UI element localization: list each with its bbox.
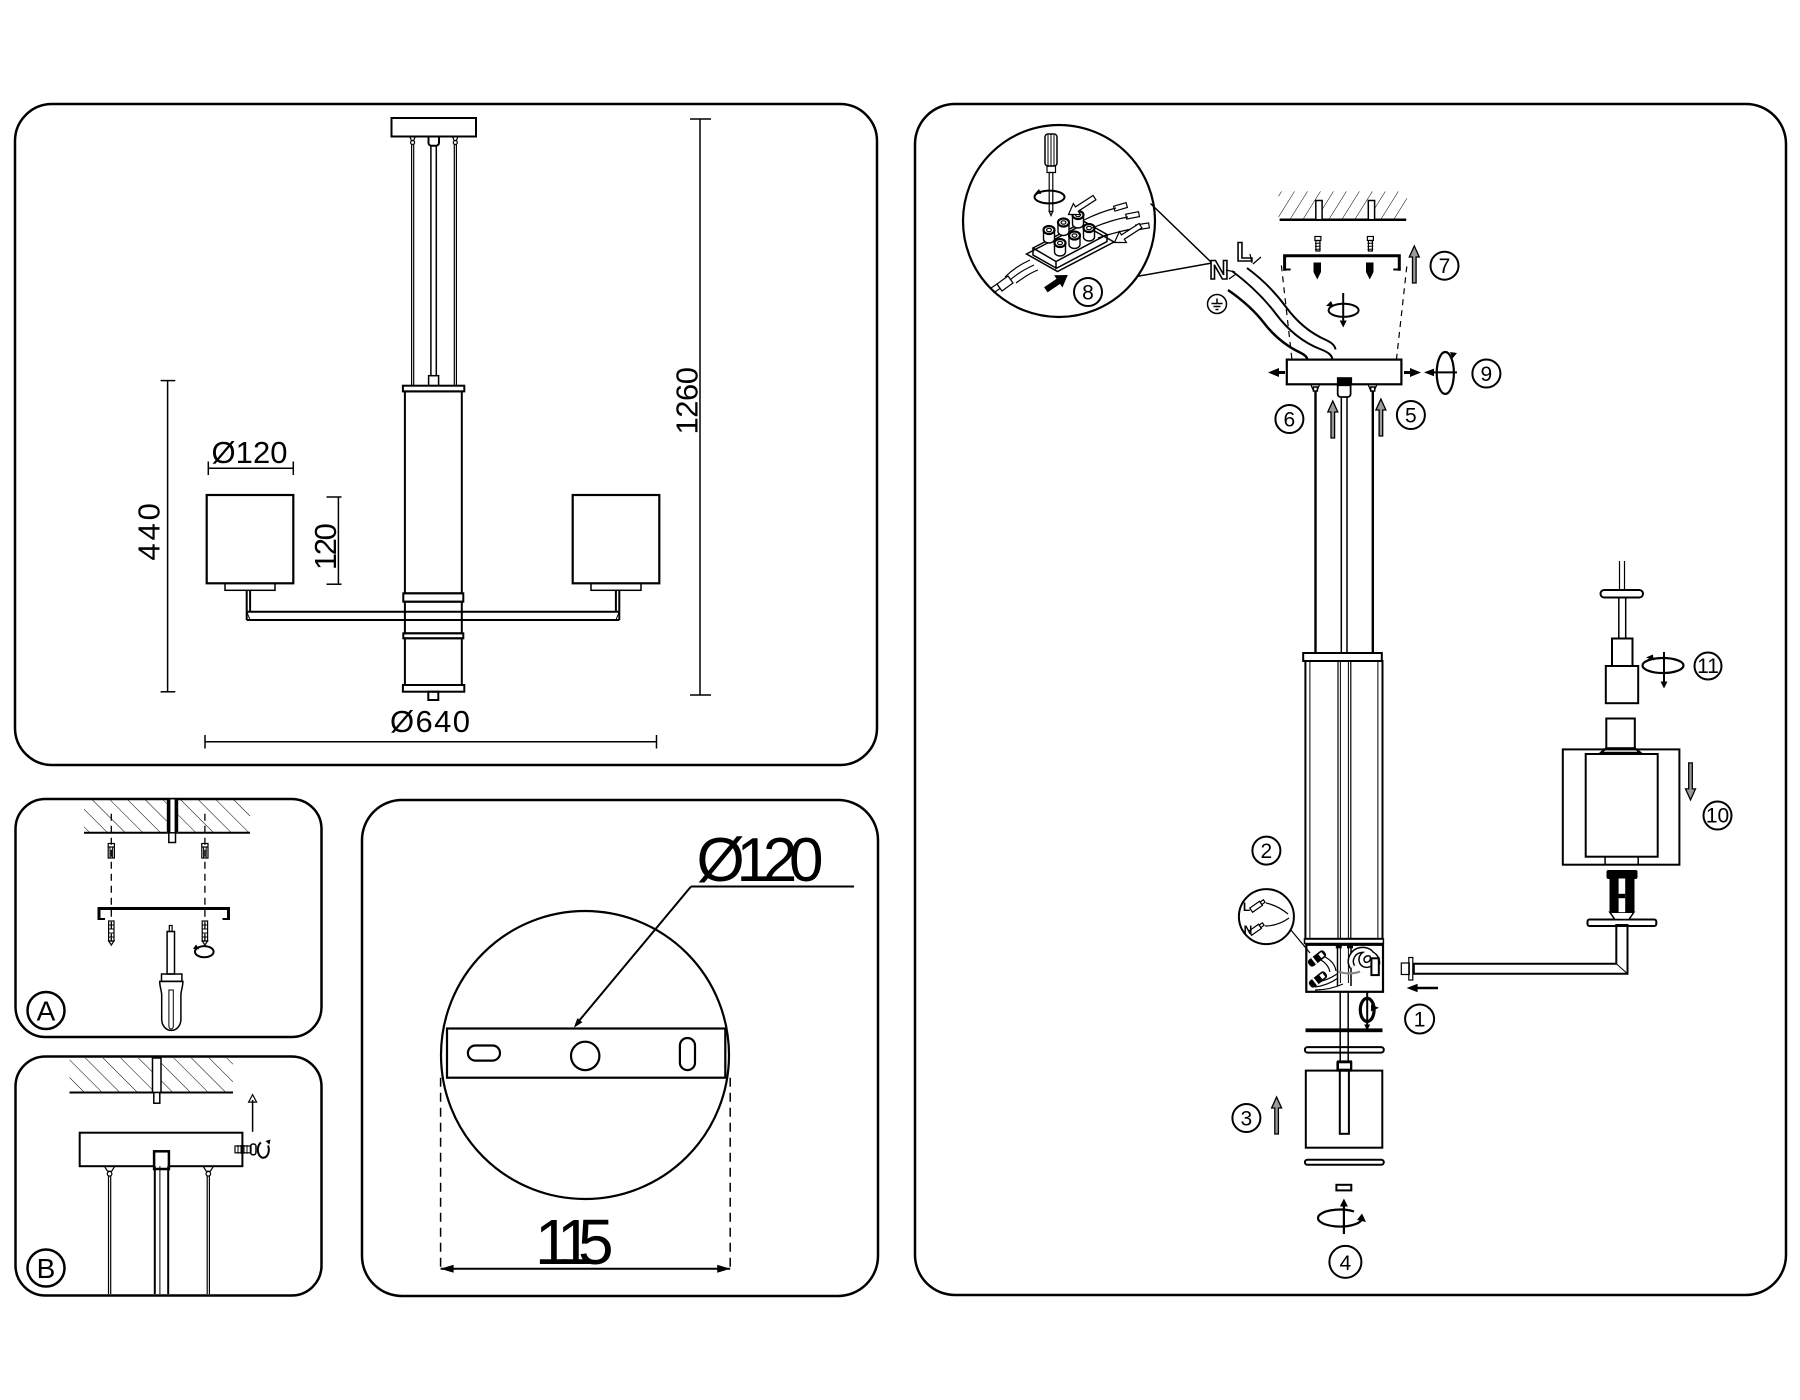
svg-text:L: L	[1236, 237, 1253, 267]
svg-text:4: 4	[1340, 1252, 1352, 1275]
svg-text:3: 3	[1241, 1108, 1253, 1131]
svg-text:Ø120: Ø120	[212, 435, 288, 470]
svg-text:9: 9	[1481, 363, 1493, 386]
svg-text:6: 6	[1284, 409, 1296, 432]
svg-text:120: 120	[308, 523, 343, 570]
svg-text:1: 1	[1414, 1009, 1426, 1032]
svg-text:Ø120: Ø120	[697, 826, 824, 895]
svg-text:Ø640: Ø640	[390, 704, 470, 739]
svg-text:1260: 1260	[670, 367, 705, 435]
svg-text:115: 115	[535, 1206, 614, 1278]
svg-text:N: N	[1244, 923, 1253, 937]
svg-text:N: N	[1209, 255, 1229, 285]
svg-text:2: 2	[1261, 840, 1273, 863]
svg-text:B: B	[37, 1253, 56, 1284]
svg-text:L: L	[1243, 900, 1250, 914]
svg-text:10: 10	[1706, 805, 1729, 828]
svg-text:7: 7	[1439, 255, 1451, 278]
svg-text:A: A	[37, 996, 56, 1027]
svg-text:11: 11	[1697, 655, 1719, 678]
svg-text:440: 440	[132, 503, 167, 561]
svg-text:8: 8	[1082, 282, 1094, 305]
svg-text:5: 5	[1405, 405, 1417, 428]
